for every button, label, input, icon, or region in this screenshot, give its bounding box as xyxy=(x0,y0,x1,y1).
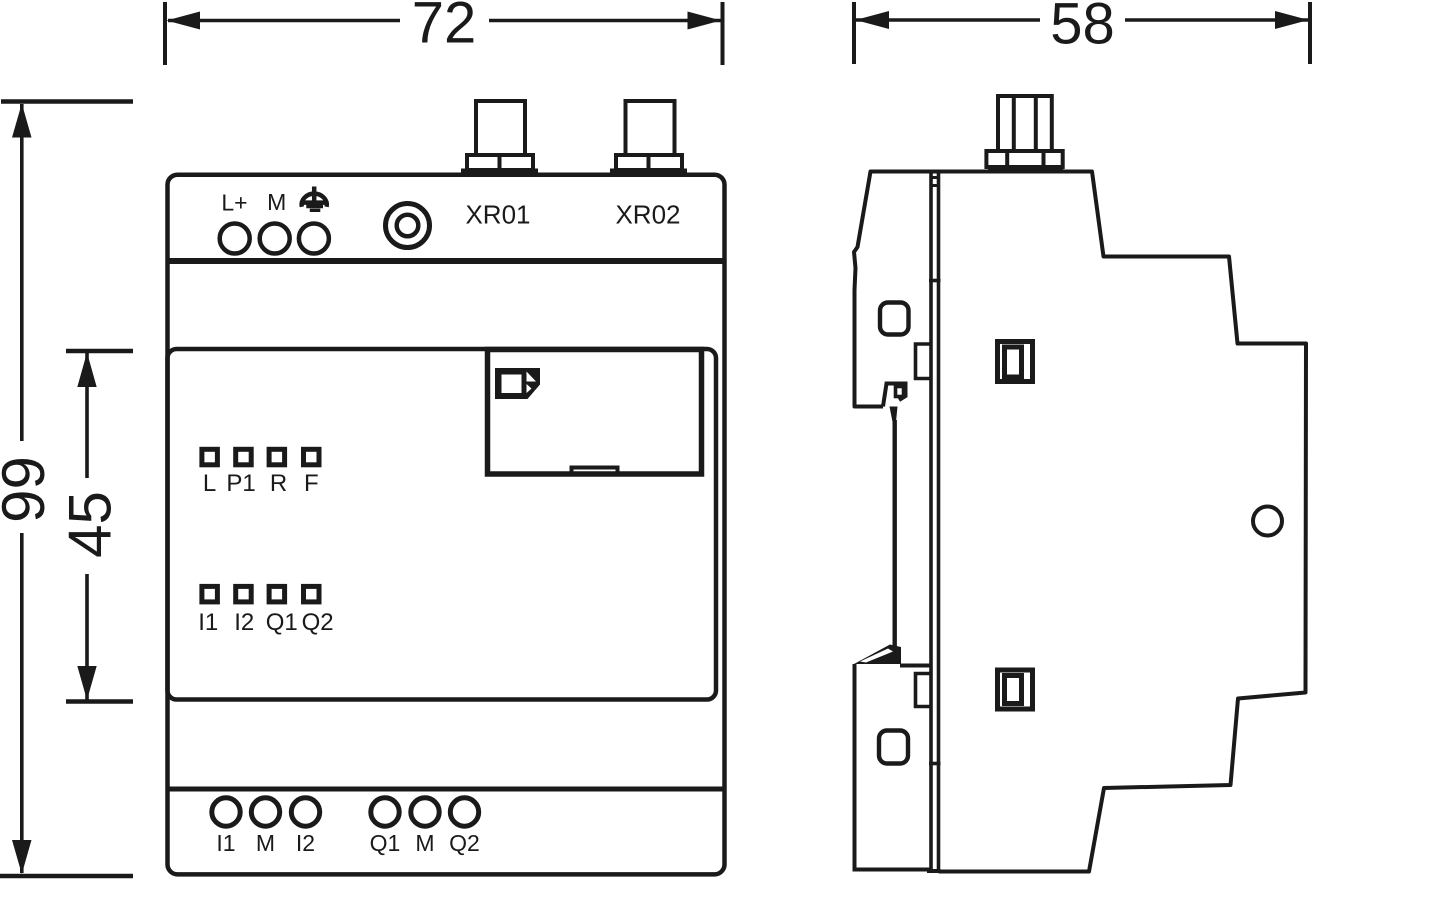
svg-text:R: R xyxy=(270,470,287,497)
svg-text:P1: P1 xyxy=(226,470,255,497)
svg-text:L: L xyxy=(203,470,216,497)
svg-text:L+: L+ xyxy=(221,190,247,216)
svg-text:Q2: Q2 xyxy=(302,609,334,636)
svg-text:58: 58 xyxy=(1050,0,1115,57)
svg-text:Q1: Q1 xyxy=(370,830,401,856)
svg-text:45: 45 xyxy=(57,491,124,558)
svg-text:XR01: XR01 xyxy=(465,200,530,230)
svg-text:I2: I2 xyxy=(234,609,254,636)
svg-text:Q1: Q1 xyxy=(266,609,298,636)
svg-text:M: M xyxy=(256,830,275,856)
svg-text:I2: I2 xyxy=(296,830,315,856)
svg-text:F: F xyxy=(304,470,319,497)
svg-text:M: M xyxy=(267,189,286,215)
svg-text:M: M xyxy=(415,830,434,856)
svg-text:Q2: Q2 xyxy=(449,830,480,856)
svg-text:72: 72 xyxy=(412,0,477,56)
svg-text:I1: I1 xyxy=(198,609,218,636)
svg-text:XR02: XR02 xyxy=(615,200,680,230)
svg-text:I1: I1 xyxy=(216,830,235,856)
svg-text:99: 99 xyxy=(0,456,57,523)
